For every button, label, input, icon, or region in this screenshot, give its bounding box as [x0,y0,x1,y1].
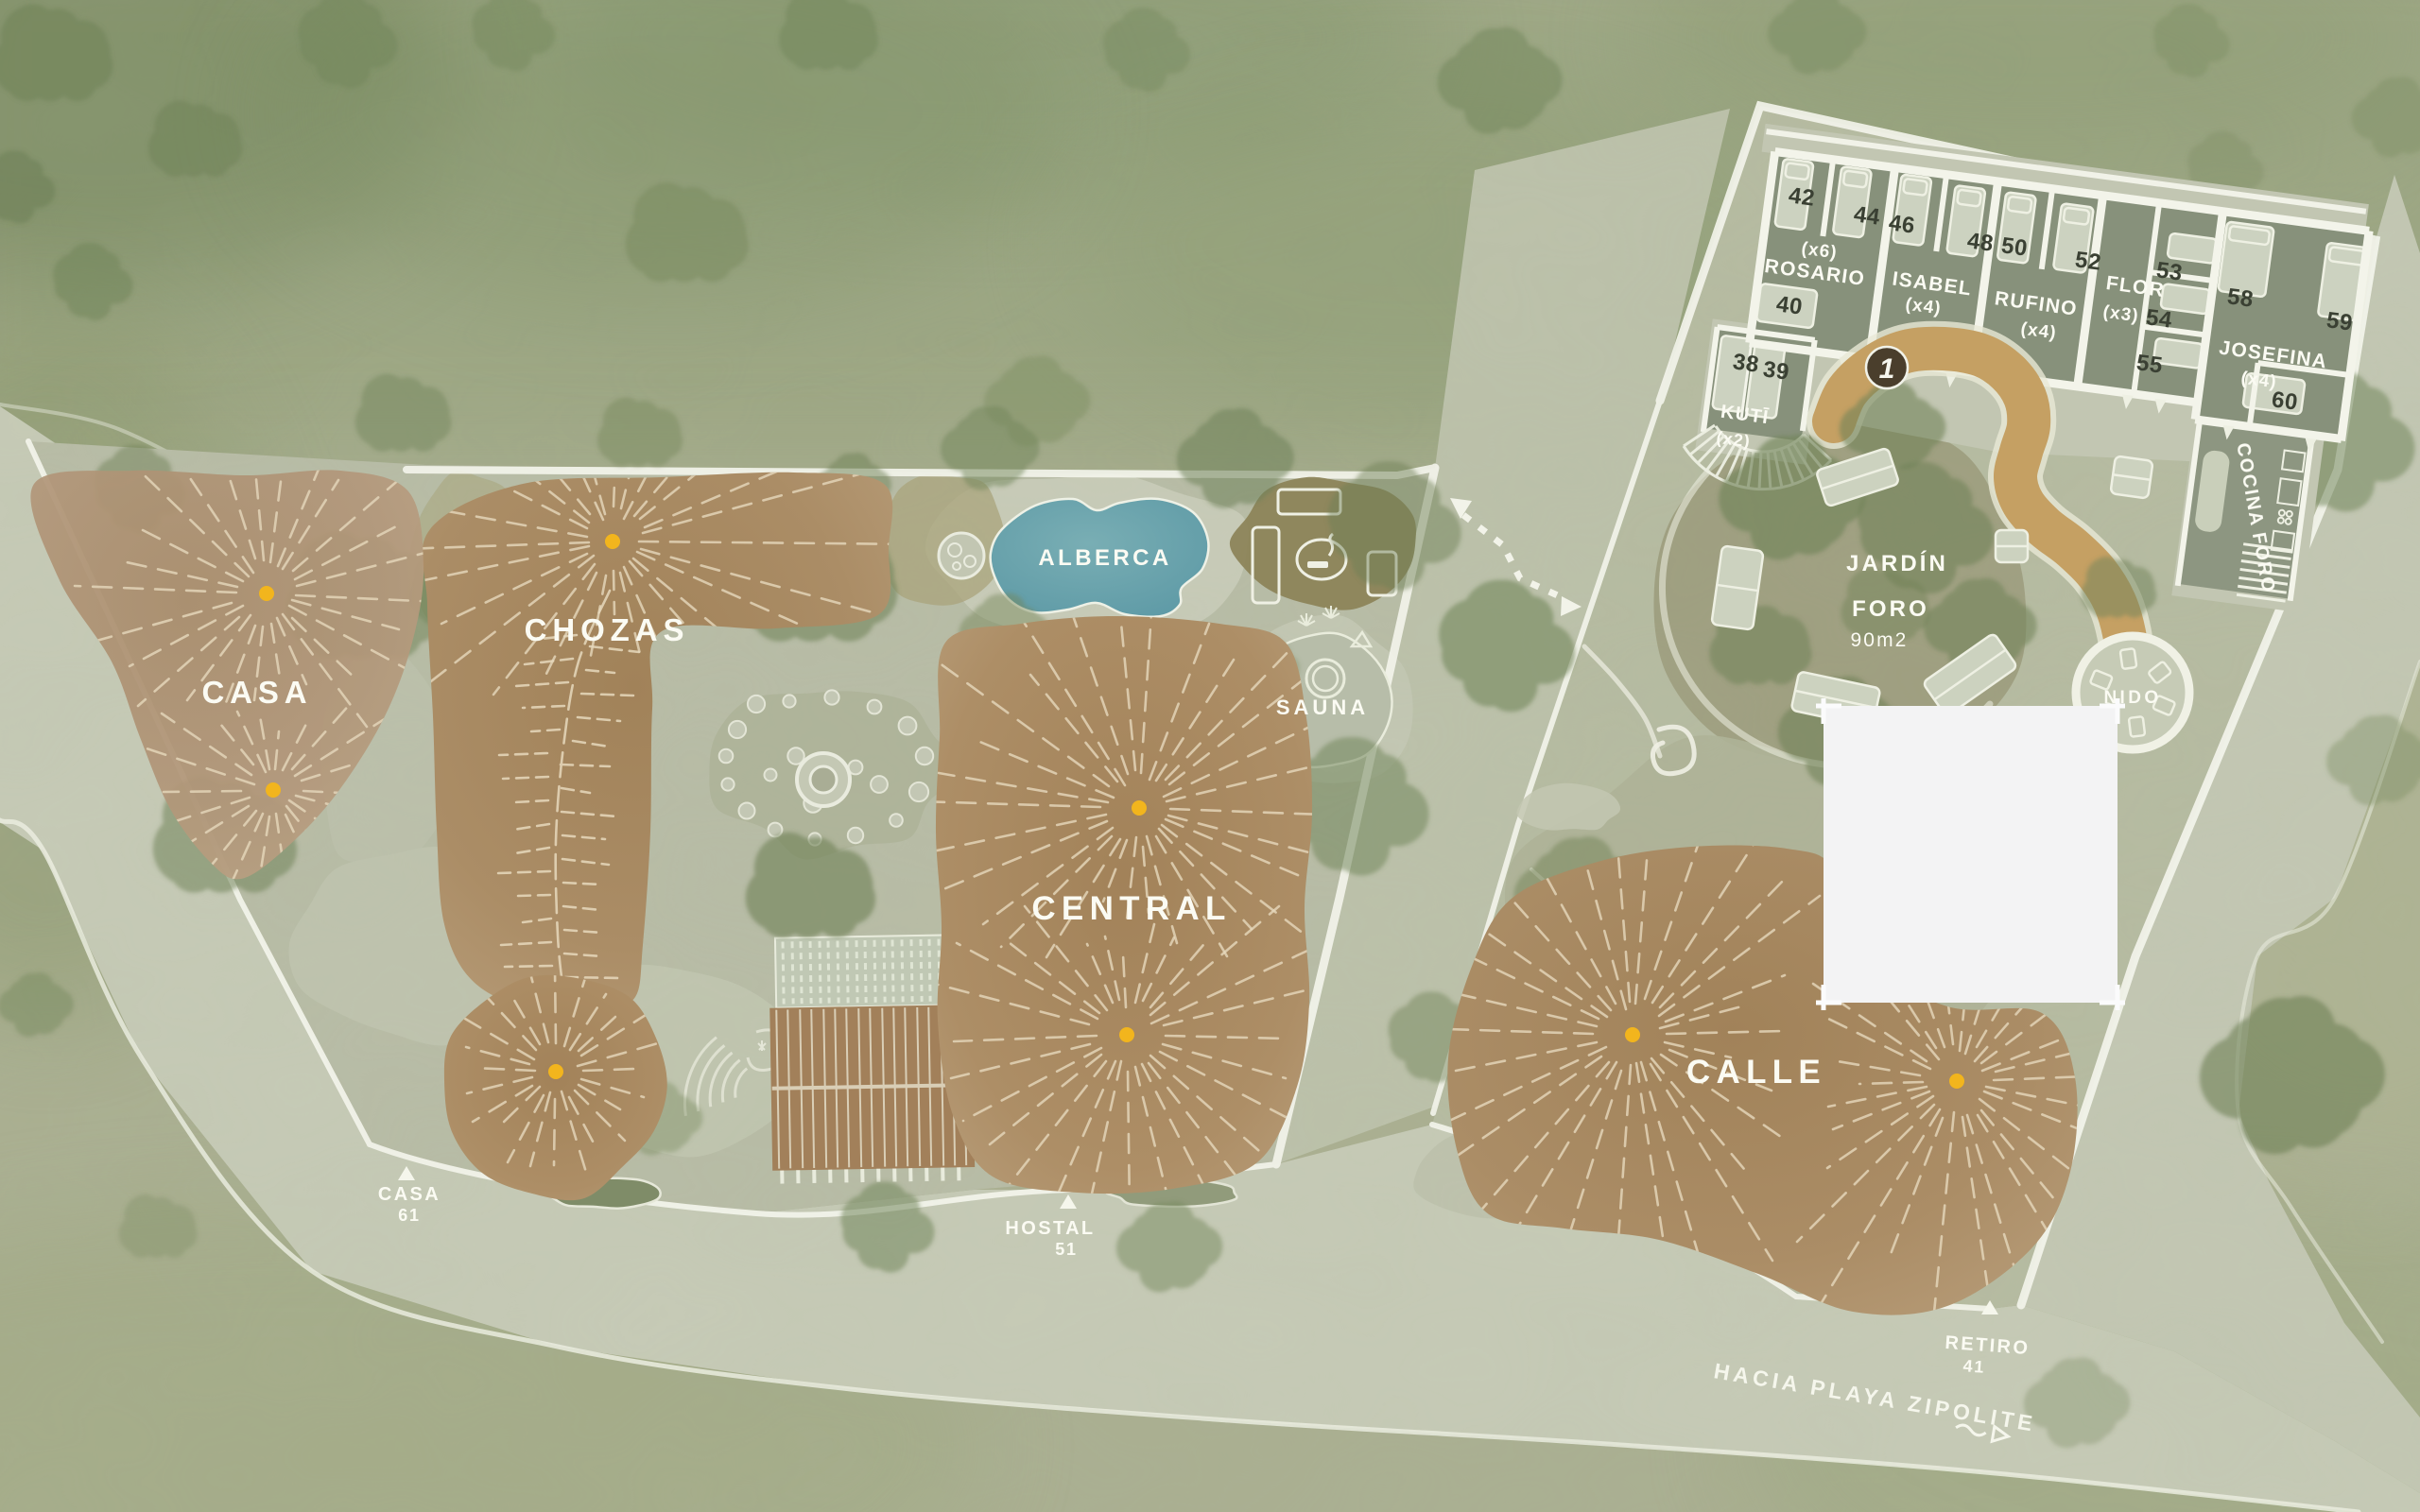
svg-text:SAUNA: SAUNA [1276,696,1369,719]
svg-text:39: 39 [1761,356,1790,385]
svg-text:50: 50 [1999,232,2029,261]
svg-text:90m2: 90m2 [1851,629,1909,651]
svg-text:48: 48 [1965,228,1995,256]
svg-text:ALBERCA: ALBERCA [1038,545,1171,571]
svg-text:CASA: CASA [378,1184,441,1205]
svg-text:HOSTAL: HOSTAL [1005,1218,1095,1239]
svg-text:52: 52 [2073,247,2102,275]
svg-text:59: 59 [2325,307,2354,335]
svg-text:CENTRAL: CENTRAL [1031,890,1231,927]
svg-text:44: 44 [1852,201,1881,230]
svg-text:61: 61 [398,1206,421,1225]
svg-text:55: 55 [2135,350,2164,378]
svg-text:JARDÍN: JARDÍN [1846,550,1948,576]
svg-text:38: 38 [1731,349,1760,377]
svg-text:51: 51 [1055,1240,1078,1259]
svg-text:58: 58 [2225,283,2255,312]
svg-text:41: 41 [1962,1356,1986,1377]
svg-text:CASA: CASA [201,675,312,710]
svg-text:54: 54 [2144,304,2173,333]
svg-text:CALLE: CALLE [1686,1054,1826,1091]
svg-text:40: 40 [1774,291,1804,319]
svg-text:1: 1 [1879,353,1895,385]
svg-text:CHOZAS: CHOZAS [525,612,690,647]
svg-text:42: 42 [1787,182,1816,211]
svg-text:46: 46 [1887,210,1916,238]
svg-text:FORO: FORO [1852,596,1929,622]
